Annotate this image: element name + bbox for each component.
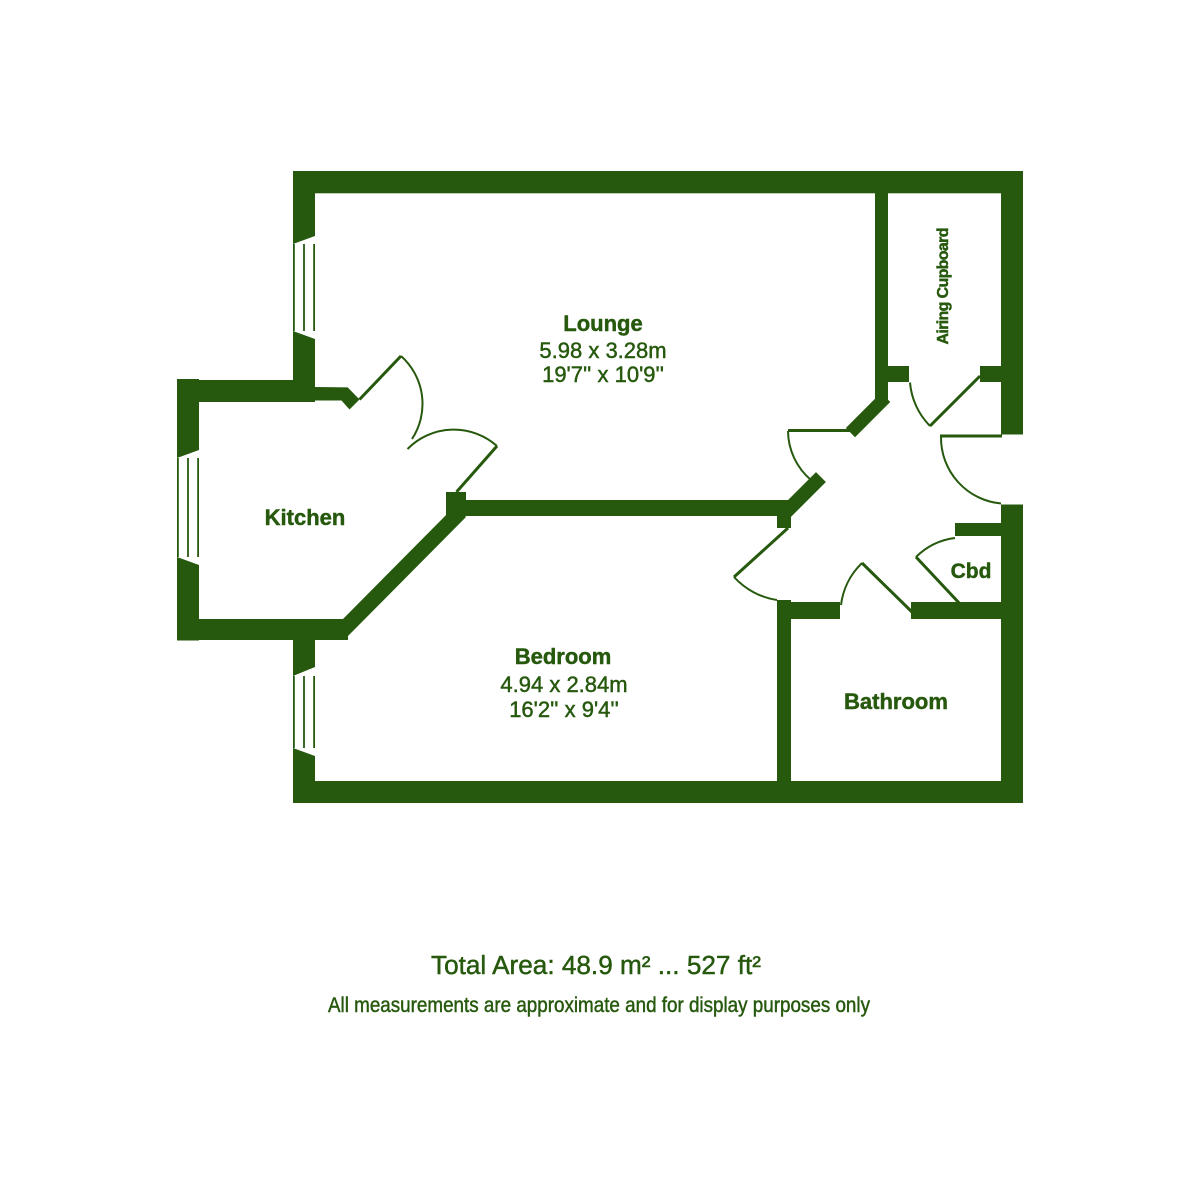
svg-text:Total Area: 48.9 m² ... 527 ft: Total Area: 48.9 m² ... 527 ft² <box>431 952 761 980</box>
svg-text:Bedroom: Bedroom <box>515 644 612 669</box>
svg-text:Cbd: Cbd <box>951 560 992 583</box>
svg-text:Lounge: Lounge <box>563 311 642 336</box>
svg-text:19'7'' x 10'9'': 19'7'' x 10'9'' <box>542 362 664 387</box>
svg-text:Bathroom: Bathroom <box>844 689 948 714</box>
svg-text:All measurements are approxima: All measurements are approximate and for… <box>328 994 870 1017</box>
svg-text:Kitchen: Kitchen <box>265 505 346 530</box>
svg-text:4.94 x 2.84m: 4.94 x 2.84m <box>500 672 627 697</box>
svg-text:16'2'' x 9'4'': 16'2'' x 9'4'' <box>509 697 619 722</box>
svg-text:Airing Cupboard: Airing Cupboard <box>935 228 952 345</box>
svg-text:5.98 x 3.28m: 5.98 x 3.28m <box>539 338 666 363</box>
